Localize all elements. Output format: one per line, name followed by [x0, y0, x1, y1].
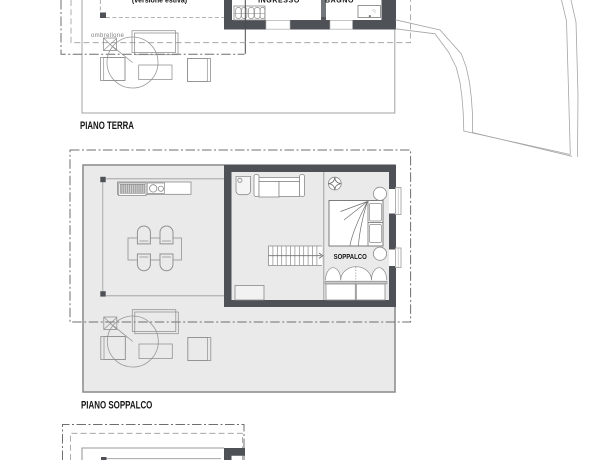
svg-text:BAGNO: BAGNO: [325, 0, 354, 4]
svg-text:SOPPALCO: SOPPALCO: [334, 253, 367, 261]
svg-text:(versione estiva): (versione estiva): [132, 0, 187, 4]
svg-text:PIANO TERRA: PIANO TERRA: [80, 120, 134, 133]
svg-text:INGRESSO: INGRESSO: [258, 0, 300, 4]
svg-text:PIANO SOPPALCO: PIANO SOPPALCO: [81, 399, 153, 412]
